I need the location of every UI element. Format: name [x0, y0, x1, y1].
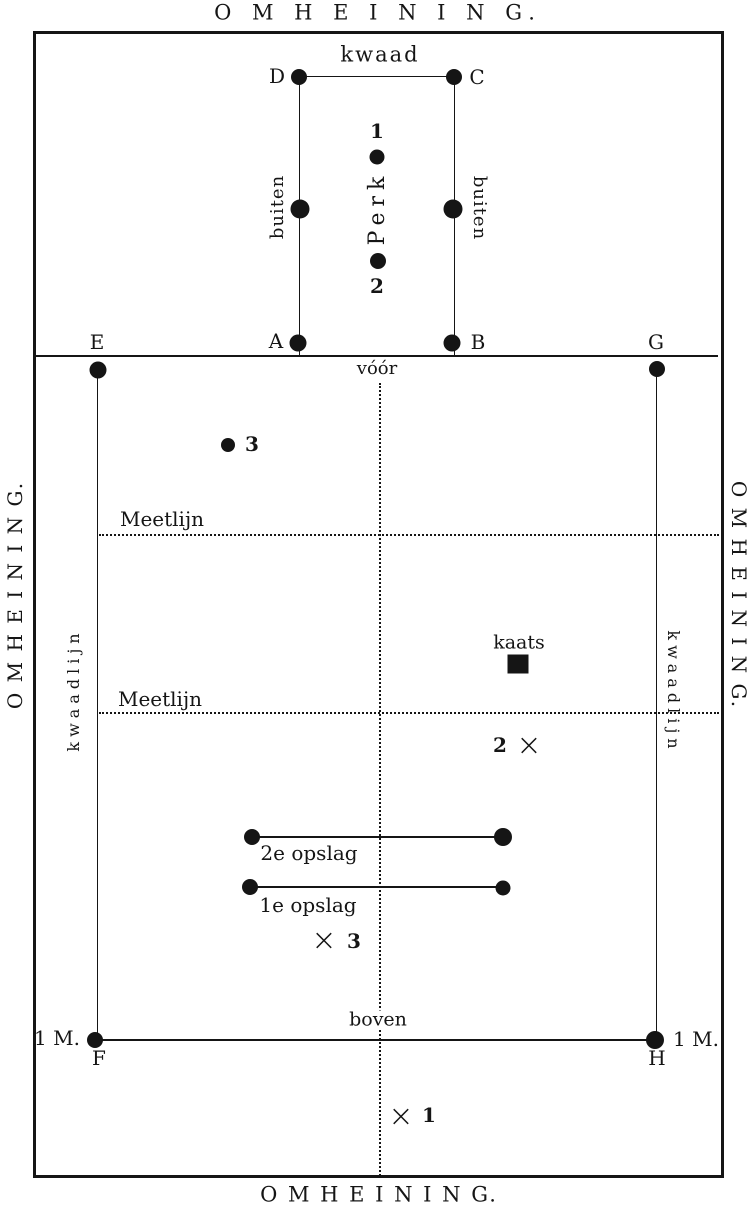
- kwaadlijn-right-line: [656, 369, 657, 1040]
- opslag-1-line: [250, 886, 503, 888]
- perk-top-line: [299, 76, 455, 77]
- corner-c-label: C: [469, 67, 484, 87]
- perk-player-2-label: 2: [370, 276, 384, 296]
- opslag-1-label: 1e opslag: [259, 895, 356, 915]
- margin-right-label: 1 M.: [673, 1029, 719, 1049]
- opponent-3-cross: ×: [311, 926, 336, 956]
- fence-label-bottom: O M H E I N I N G.: [260, 1185, 498, 1206]
- fence-label-left: O M H E I N I N G.: [5, 481, 25, 709]
- opslag-1-right-dot: [496, 881, 511, 896]
- boven-line: [95, 1039, 655, 1041]
- boven-label: boven: [346, 1011, 410, 1030]
- opslag-2-right-dot: [494, 828, 512, 846]
- corner-e-label: E: [90, 332, 105, 352]
- voor-line: [33, 355, 718, 357]
- perk-player-1-dot: [370, 150, 385, 165]
- corner-b-label: B: [471, 332, 486, 352]
- corner-b-dot: [444, 335, 461, 352]
- corner-h-label: H: [648, 1048, 665, 1068]
- opslag-1-left-dot: [242, 879, 258, 895]
- perk-player-2-dot: [370, 253, 386, 269]
- opponent-2-cross: ×: [516, 731, 541, 761]
- buiten-right-label: buiten: [470, 176, 488, 240]
- opponent-1-cross: ×: [388, 1102, 413, 1132]
- receiver-3-dot: [221, 438, 235, 452]
- kaats-marker: [508, 655, 529, 674]
- kwaadlijn-right-label: kwaadlijn: [665, 630, 681, 753]
- corner-d-label: D: [269, 66, 285, 86]
- corner-c-dot: [446, 69, 462, 85]
- margin-left-label: 1 M.: [34, 1028, 80, 1048]
- kwaadlijn-left-line: [97, 370, 98, 1040]
- fence-label-top: O M H E I N I N G.: [214, 3, 542, 24]
- buiten-right-dot: [444, 200, 463, 219]
- buiten-left-dot: [291, 200, 310, 219]
- perk-name-label: Perk: [367, 171, 389, 246]
- center-dotted-line: [379, 383, 381, 1176]
- corner-a-dot: [290, 335, 307, 352]
- perk-player-1-label: 1: [370, 121, 384, 141]
- opslag-2-left-dot: [244, 829, 260, 845]
- meetlijn-2-label: Meetlijn: [118, 689, 202, 709]
- opponent-2-label: 2: [493, 735, 507, 755]
- corner-f-label: F: [92, 1048, 106, 1068]
- corner-a-label: A: [269, 331, 283, 351]
- opslag-2-label: 2e opslag: [260, 843, 357, 863]
- kaats-field-diagram: O M H E I N I N G. O M H E I N I N G. O …: [0, 0, 753, 1207]
- meetlijn-1-label: Meetlijn: [120, 509, 204, 529]
- receiver-3-label: 3: [245, 434, 259, 454]
- opponent-1-label: 1: [422, 1105, 436, 1125]
- kwaadlijn-left-label: kwaadlijn: [66, 628, 82, 751]
- corner-d-dot: [291, 69, 307, 85]
- voor-label: vóór: [357, 360, 397, 378]
- kwaad-line-label: kwaad: [340, 45, 419, 66]
- meetlijn-2-line: [99, 712, 719, 714]
- buiten-left-label: buiten: [269, 175, 287, 239]
- fence-label-right: O M H E I N I N G.: [729, 481, 749, 709]
- meetlijn-1-line: [99, 534, 719, 536]
- opponent-3-label: 3: [347, 931, 361, 951]
- kaats-label: kaats: [493, 634, 545, 653]
- opslag-2-line: [252, 836, 503, 838]
- corner-g-label: G: [648, 332, 664, 352]
